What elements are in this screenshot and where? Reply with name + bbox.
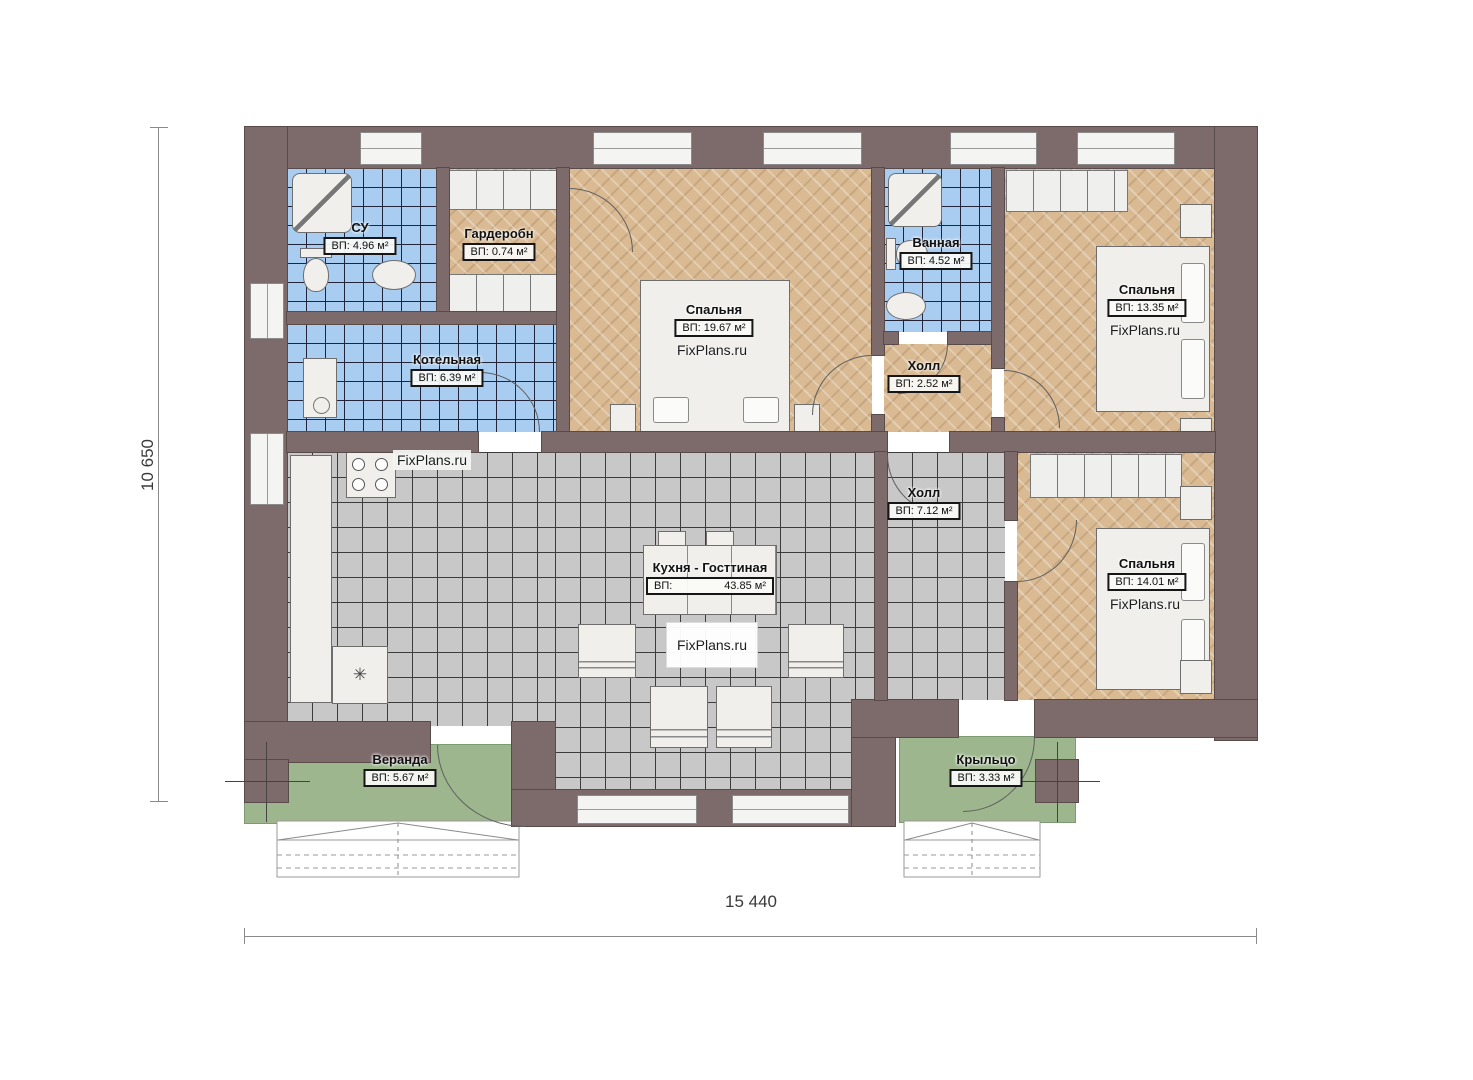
kitchen-bay-floor — [555, 452, 875, 790]
room-name: Крыльцо — [949, 752, 1022, 767]
wall-bedroom-bathroom — [872, 168, 884, 355]
veranda-steps — [276, 820, 520, 878]
armchair-icon — [578, 624, 636, 678]
closet-cells — [449, 274, 559, 314]
wall-wardrobe-bedroom — [557, 168, 569, 432]
room-name: Спальня — [674, 302, 753, 317]
dim-height-label: 10 650 — [138, 439, 158, 491]
wall-kitchen-hall — [875, 452, 887, 700]
toilet-bowl-icon — [303, 258, 329, 292]
pillow-icon — [1181, 339, 1205, 399]
watermark-text: FixPlans.ru — [1110, 596, 1180, 612]
chair-icon — [658, 531, 686, 546]
wall-su-wardrobe — [437, 168, 449, 312]
burner-icon — [375, 478, 388, 491]
armchair-icon — [650, 686, 708, 748]
room-name: Котельная — [410, 352, 483, 367]
dim-width-label: 15 440 — [725, 892, 777, 912]
boiler-unit-icon — [303, 358, 337, 418]
pier-left-axis-v — [266, 742, 267, 822]
watermark-box: FixPlans.ru — [666, 622, 758, 668]
sink-icon — [372, 260, 416, 290]
closet-cells — [449, 170, 559, 210]
fridge-icon: ✳ — [332, 646, 388, 704]
nightstand-icon — [1180, 660, 1212, 694]
pier-left-axis-h — [225, 781, 310, 782]
wall-bedroom-bathroom-stub — [872, 415, 884, 432]
nightstand-icon — [1180, 486, 1212, 520]
window-top-3 — [763, 132, 862, 165]
room-label-boiler: Котельная ВП: 6.39 м² — [410, 352, 483, 387]
window-top-5 — [1077, 132, 1175, 165]
room-label-hall-top: Холл ВП: 2.52 м² — [887, 358, 960, 393]
window-bay-2 — [732, 795, 849, 824]
wall-bottom-right-a — [852, 700, 958, 737]
pillow-icon — [653, 397, 689, 423]
wall-bay-right — [852, 722, 895, 826]
room-label-wardrobe: Гардеробн ВП: 0.74 м² — [462, 226, 535, 261]
room-area: ВП: 14.01 м² — [1107, 573, 1186, 591]
room-name: Кухня - Госттиная — [646, 560, 774, 575]
kitchen-counter — [290, 455, 332, 703]
room-name: Спальня — [1107, 282, 1186, 297]
nightstand-icon — [1180, 204, 1212, 238]
window-top-2 — [593, 132, 692, 165]
pillow-icon — [743, 397, 779, 423]
dim-tick — [1256, 928, 1257, 944]
room-label-bedroom-top: Спальня ВП: 19.67 м² — [674, 302, 753, 337]
dim-tick — [244, 928, 245, 944]
porch-steps — [903, 820, 1041, 878]
room-name: Ванная — [899, 235, 972, 250]
pier-right-axis-h — [1016, 781, 1100, 782]
sink-icon — [886, 292, 926, 320]
toilet-tank-icon — [886, 238, 896, 270]
room-area: ВП: 3.33 м² — [949, 769, 1022, 787]
wall-hall-bedroom2 — [992, 168, 1004, 368]
room-area: ВП: 7.12 м² — [887, 502, 960, 520]
wall-bathroom-hall-b — [948, 332, 992, 344]
nightstand-icon — [610, 404, 636, 432]
room-area: ВП: 5.67 м² — [363, 769, 436, 787]
room-name: Холл — [887, 358, 960, 373]
watermark-text: FixPlans.ru — [677, 342, 747, 358]
watermark-text: FixPlans.ru — [393, 450, 471, 470]
pier-right-axis-v — [1057, 742, 1058, 822]
wall-hall-bedroom3-b — [1005, 582, 1017, 700]
wall-mid-c — [950, 432, 1215, 452]
room-label-su: СУ ВП: 4.96 м² — [323, 220, 396, 255]
room-label-bedroom-right-top: Спальня ВП: 13.35 м² — [1107, 282, 1186, 317]
window-bay-1 — [577, 795, 697, 824]
area-prefix: ВП: — [654, 580, 672, 592]
area-value: 43.85 м² — [724, 580, 766, 592]
room-area: ВП: 19.67 м² — [674, 319, 753, 337]
wall-su-boiler — [287, 312, 557, 324]
room-label-kitchen-living: Кухня - Госттиная ВП: 43.85 м² — [646, 560, 774, 595]
room-label-bathroom: Ванная ВП: 4.52 м² — [899, 235, 972, 270]
window-left-2 — [250, 433, 284, 505]
room-name: Веранда — [363, 752, 436, 767]
boiler-dial-icon — [313, 397, 330, 414]
room-area: ВП: 4.52 м² — [899, 252, 972, 270]
armchair-icon — [716, 686, 772, 748]
room-area: ВП: 2.52 м² — [887, 375, 960, 393]
room-label-porch: Крыльцо ВП: 3.33 м² — [949, 752, 1022, 787]
dim-tick — [150, 801, 168, 802]
room-area: ВП: 4.96 м² — [323, 237, 396, 255]
burner-icon — [352, 458, 365, 471]
room-name: Гардеробн — [462, 226, 535, 241]
room-name: Холл — [887, 485, 960, 500]
dim-line-height — [158, 128, 159, 802]
room-name: СУ — [323, 220, 396, 235]
room-area: ВП: 6.39 м² — [410, 369, 483, 387]
floor-plan-canvas: ✳ — [0, 0, 1473, 1080]
window-top-1 — [360, 132, 422, 165]
stove-icon — [346, 452, 396, 498]
room-label-bedroom-right-bottom: Спальня ВП: 14.01 м² — [1107, 556, 1186, 591]
shower-tray-icon — [888, 173, 942, 227]
dim-tick — [150, 127, 168, 128]
room-area: ВП: 0.74 м² — [462, 243, 535, 261]
wall-bathroom-hall-a — [884, 332, 898, 344]
room-area: ВП: 13.35 м² — [1107, 299, 1186, 317]
wall-right — [1215, 127, 1257, 740]
chair-icon — [706, 531, 734, 546]
room-label-hall-bottom: Холл ВП: 7.12 м² — [887, 485, 960, 520]
wall-hall-bedroom3-a — [1005, 452, 1017, 520]
room-label-veranda: Веранда ВП: 5.67 м² — [363, 752, 436, 787]
wall-bottom-right-b — [1035, 700, 1257, 737]
window-top-4 — [950, 132, 1037, 165]
wall-mid-b — [542, 432, 887, 452]
snowflake-icon: ✳ — [333, 647, 387, 703]
wall-mid-a — [287, 432, 478, 452]
closet-cells — [1006, 170, 1128, 212]
watermark-text: FixPlans.ru — [1110, 322, 1180, 338]
window-left-1 — [250, 283, 284, 339]
closet-cells — [1030, 454, 1182, 498]
burner-icon — [352, 478, 365, 491]
dim-line-width — [245, 936, 1257, 937]
room-name: Спальня — [1107, 556, 1186, 571]
room-area: ВП: 43.85 м² — [646, 577, 774, 595]
armchair-icon — [788, 624, 844, 678]
burner-icon — [375, 458, 388, 471]
wall-hall-bedroom2-stub — [992, 418, 1004, 432]
